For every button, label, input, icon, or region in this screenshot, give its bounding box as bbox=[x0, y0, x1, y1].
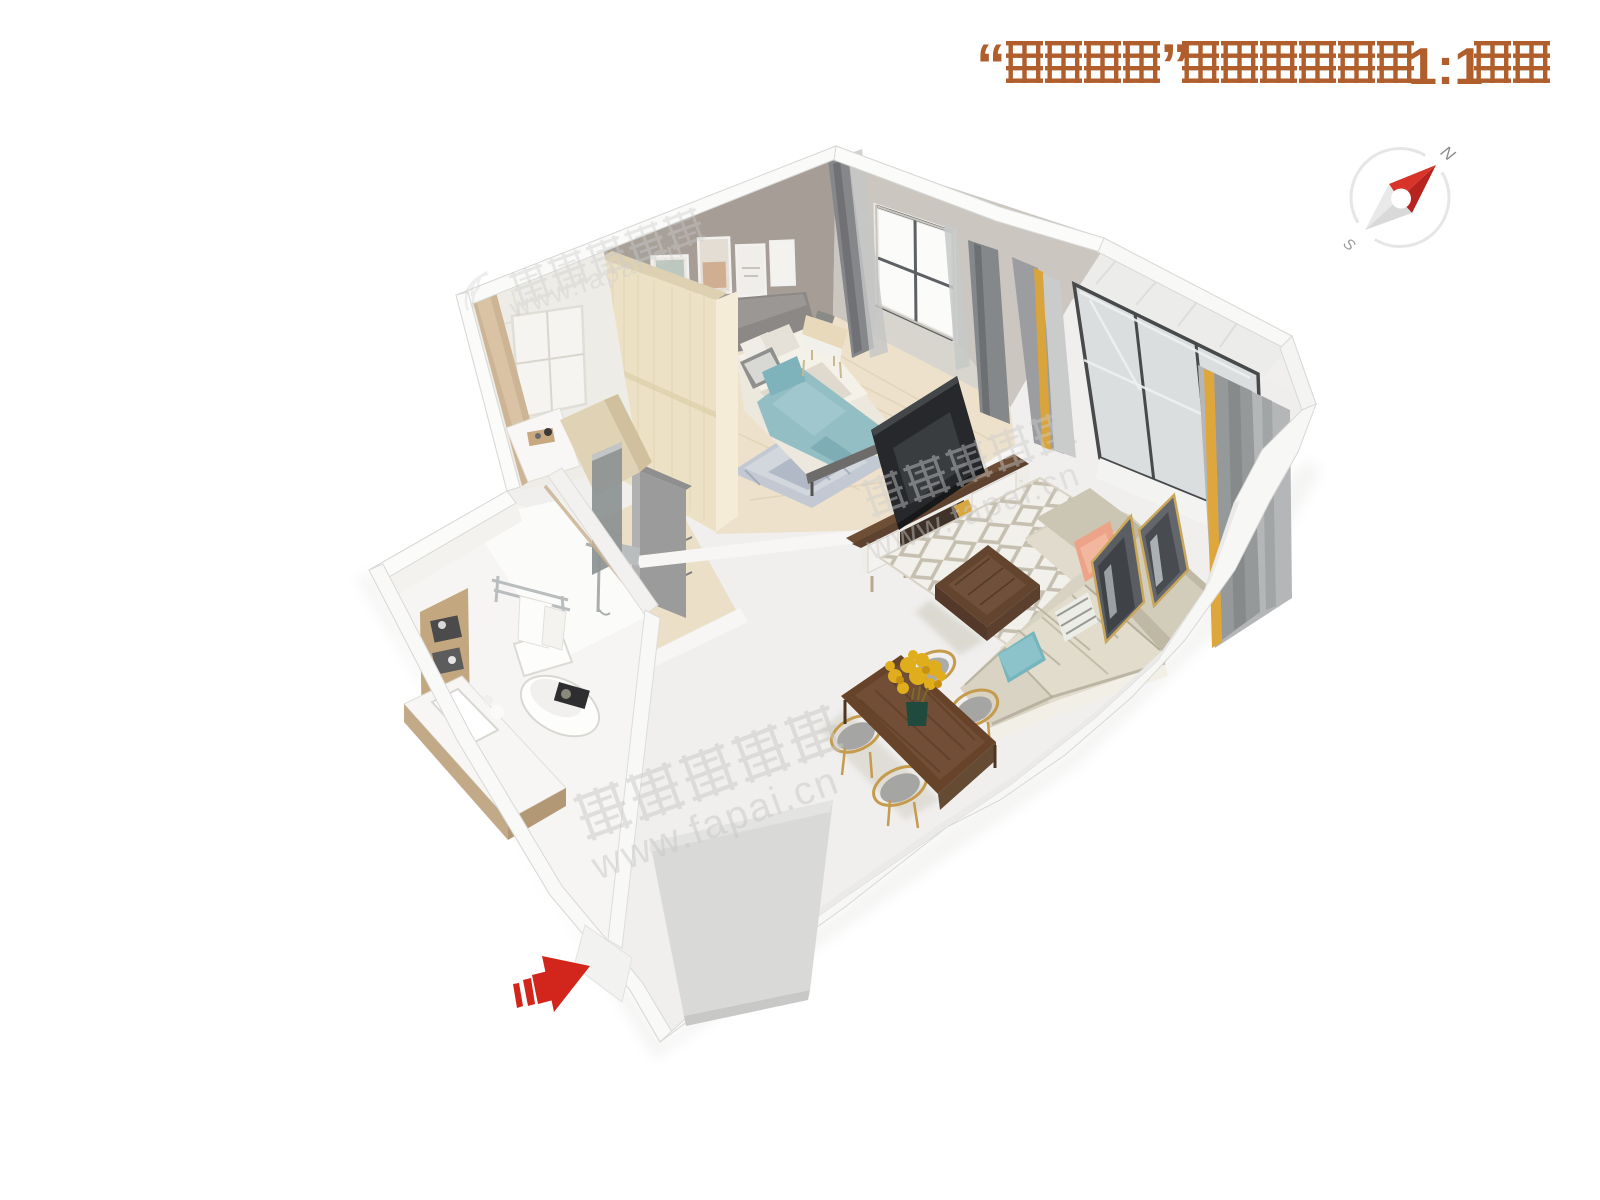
svg-text:“: “ bbox=[976, 32, 1006, 99]
svg-text:1:1: 1:1 bbox=[1408, 38, 1483, 96]
